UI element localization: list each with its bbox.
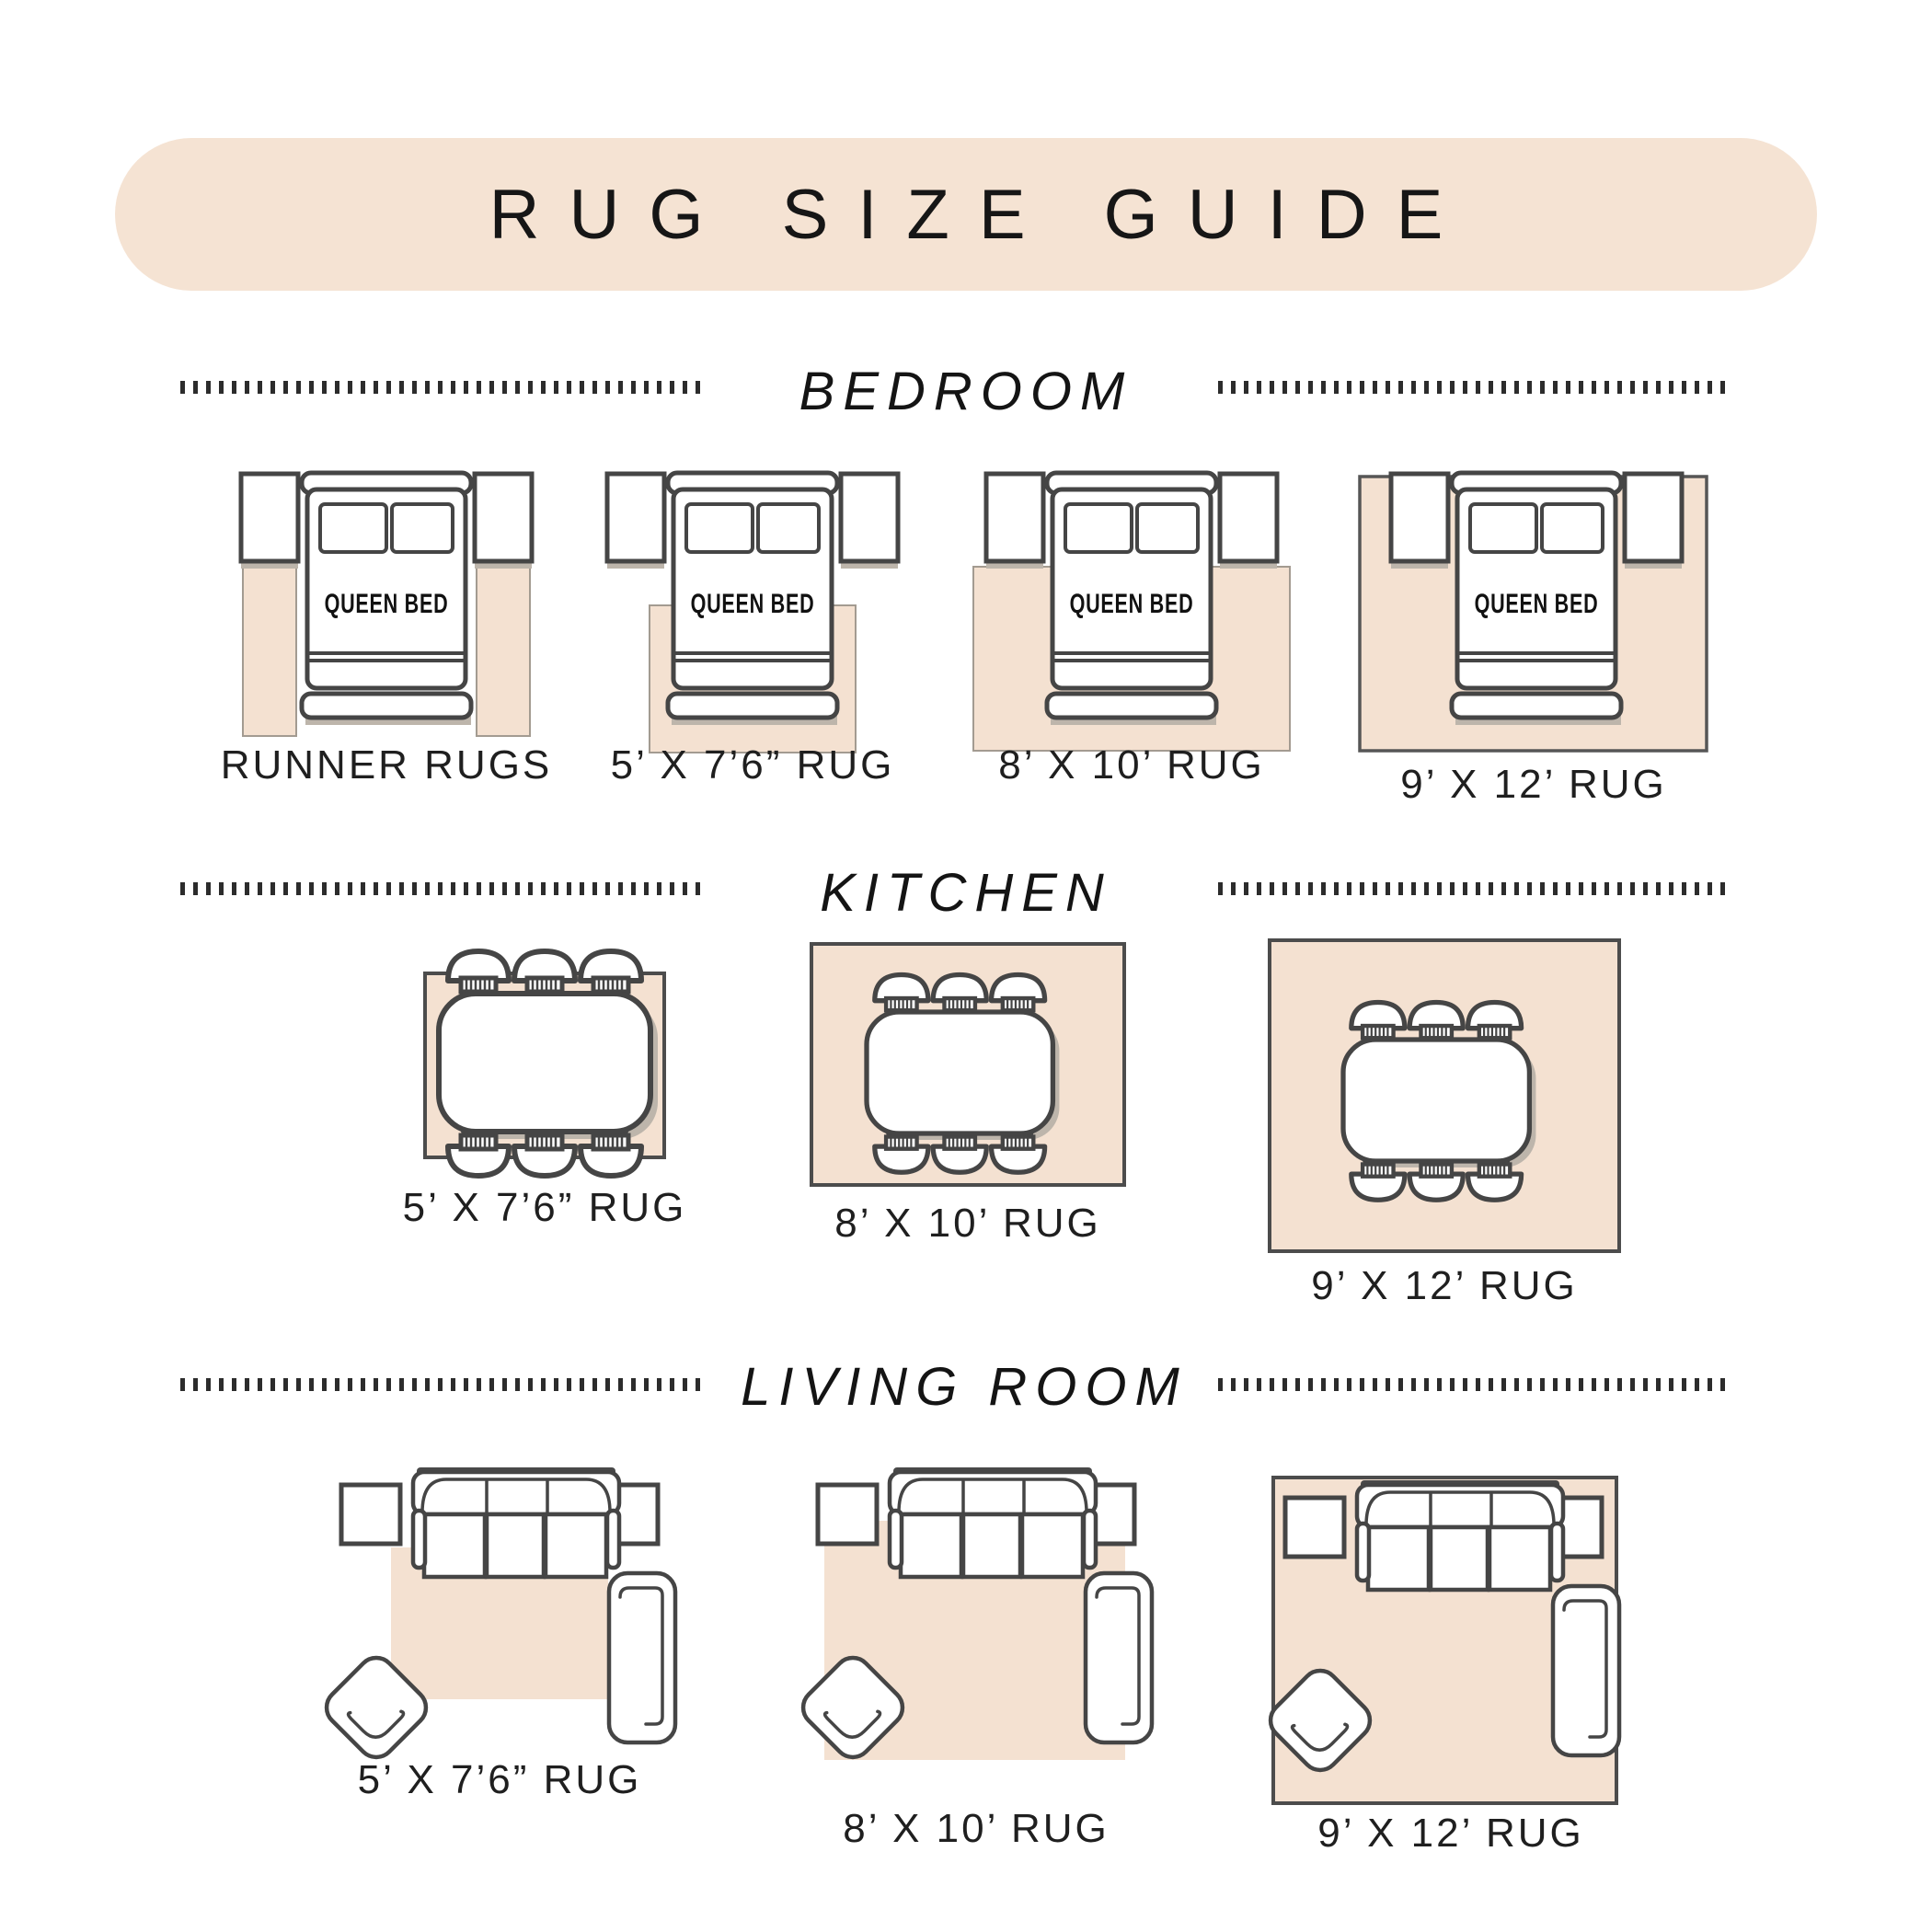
figure-caption: 9’ X 12’ RUG — [1317, 1811, 1584, 1857]
runner-rug-left — [243, 561, 296, 736]
bedroom-8x10-figure — [948, 460, 1316, 777]
section-title-living-room: LIVING ROOM — [741, 1356, 1188, 1418]
page-title: RUG SIZE GUIDE — [460, 175, 1473, 255]
bedroom-5x76-figure — [569, 460, 937, 777]
dotted-divider — [180, 882, 708, 895]
section-title-kitchen: KITCHEN — [820, 862, 1112, 924]
figure-caption: 5’ X 7’6” RUG — [611, 742, 895, 788]
dotted-divider — [1218, 381, 1733, 394]
dotted-divider — [1218, 1378, 1733, 1391]
rug-size-guide-infographic: QUEEN BED — [0, 0, 1932, 1932]
figure-caption: RUNNER RUGS — [221, 742, 553, 788]
kitchen-9x12-figure — [1159, 929, 1730, 1297]
figure-caption: 8’ X 10’ RUG — [834, 1201, 1101, 1247]
banner: RUG SIZE GUIDE — [115, 138, 1817, 291]
dotted-divider — [180, 381, 708, 394]
living-9x12-figure — [1239, 1463, 1662, 1849]
figure-caption: 8’ X 10’ RUG — [998, 742, 1265, 788]
dotted-divider — [180, 1378, 708, 1391]
living-8x10-figure — [765, 1463, 1188, 1849]
figure-caption: 5’ X 7’6” RUG — [403, 1185, 687, 1231]
figure-caption: 5’ X 7’6” RUG — [358, 1757, 642, 1803]
runner-rug-right — [477, 561, 530, 736]
section-title-bedroom: BEDROOM — [799, 361, 1133, 422]
dotted-divider — [1218, 882, 1733, 895]
figure-caption: 9’ X 12’ RUG — [1400, 762, 1667, 808]
figure-caption: 8’ X 10’ RUG — [843, 1806, 1110, 1852]
bedroom-runner-rugs-figure — [202, 460, 570, 777]
bedroom-9x12-figure — [1352, 460, 1720, 777]
figure-caption: 9’ X 12’ RUG — [1311, 1263, 1578, 1309]
